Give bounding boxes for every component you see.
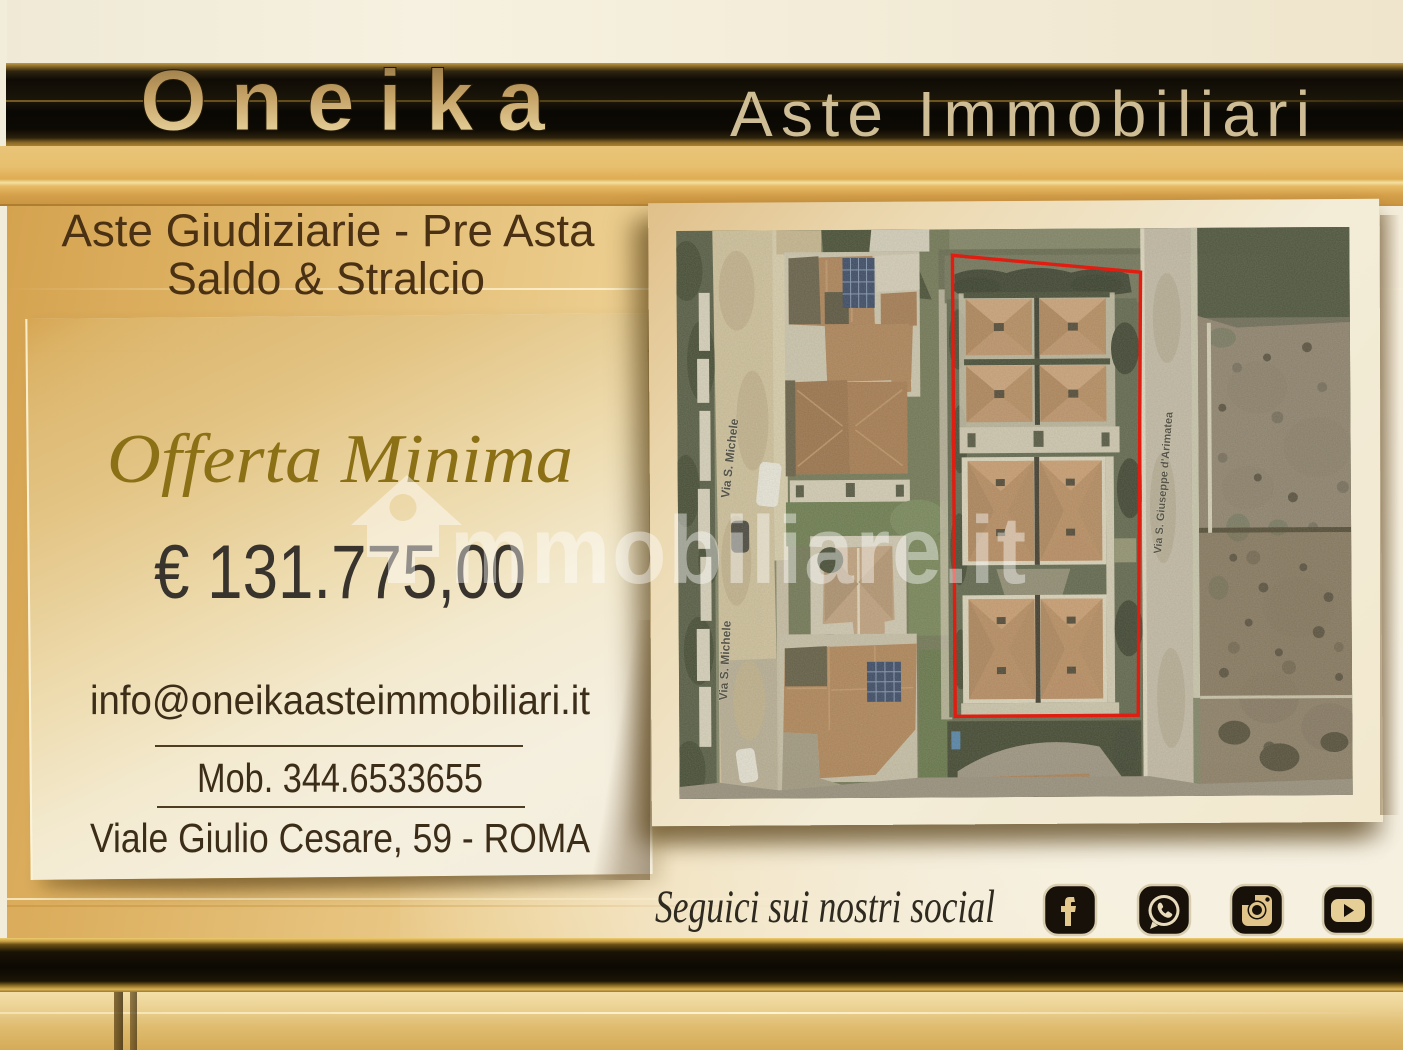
svg-text:Mob. 344.6533655: Mob. 344.6533655 <box>197 755 483 801</box>
svg-text:Oneika: Oneika <box>140 63 546 147</box>
svg-text:info@oneikaasteimmobiliari.it: info@oneikaasteimmobiliari.it <box>90 677 591 723</box>
svg-text:mmobiliare.it: mmobiliare.it <box>450 497 1028 604</box>
svg-text:Saldo & Stralcio: Saldo & Stralcio <box>167 253 485 302</box>
svg-text:Viale Giulio Cesare, 59 - ROMA: Viale Giulio Cesare, 59 - ROMA <box>90 815 591 861</box>
svg-text:Aste Immobiliari: Aste Immobiliari <box>730 78 1310 147</box>
svg-text:Seguici sui nostri social: Seguici sui nostri social <box>655 881 995 933</box>
svg-text:Aste Giudiziarie - Pre Asta: Aste Giudiziarie - Pre Asta <box>62 205 596 254</box>
